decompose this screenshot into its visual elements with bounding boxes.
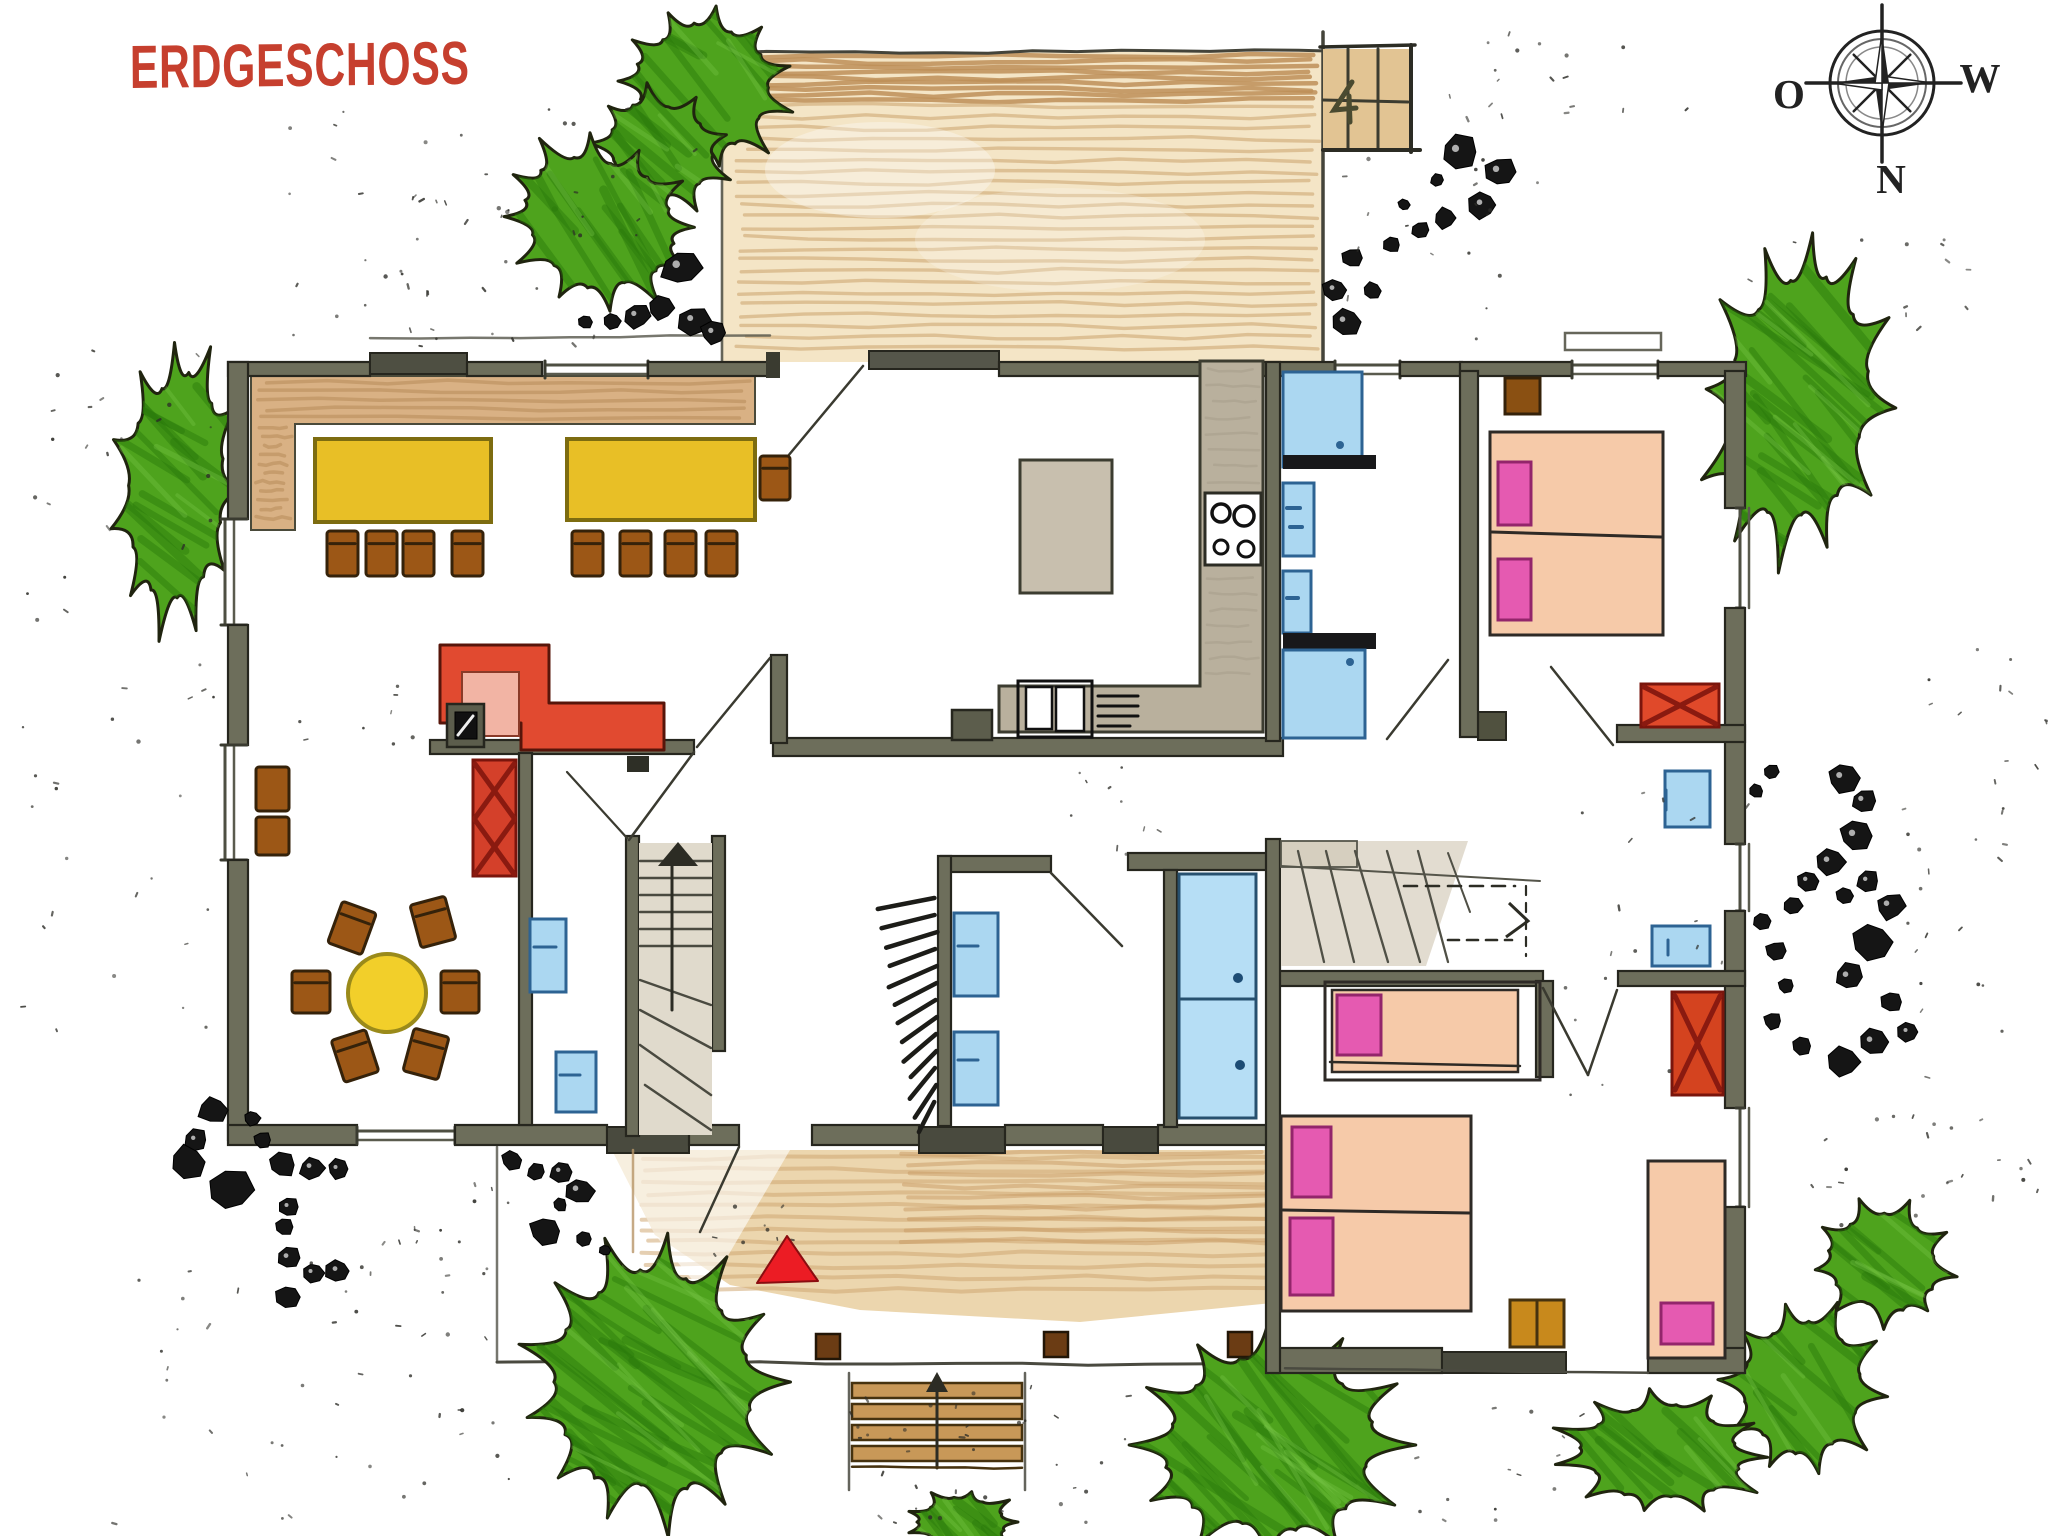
svg-text:W: W bbox=[1960, 55, 2001, 101]
svg-text:ERDGESCHOSS: ERDGESCHOSS bbox=[130, 29, 470, 102]
svg-text:N: N bbox=[1876, 156, 1906, 202]
svg-text:O: O bbox=[1773, 71, 1805, 117]
